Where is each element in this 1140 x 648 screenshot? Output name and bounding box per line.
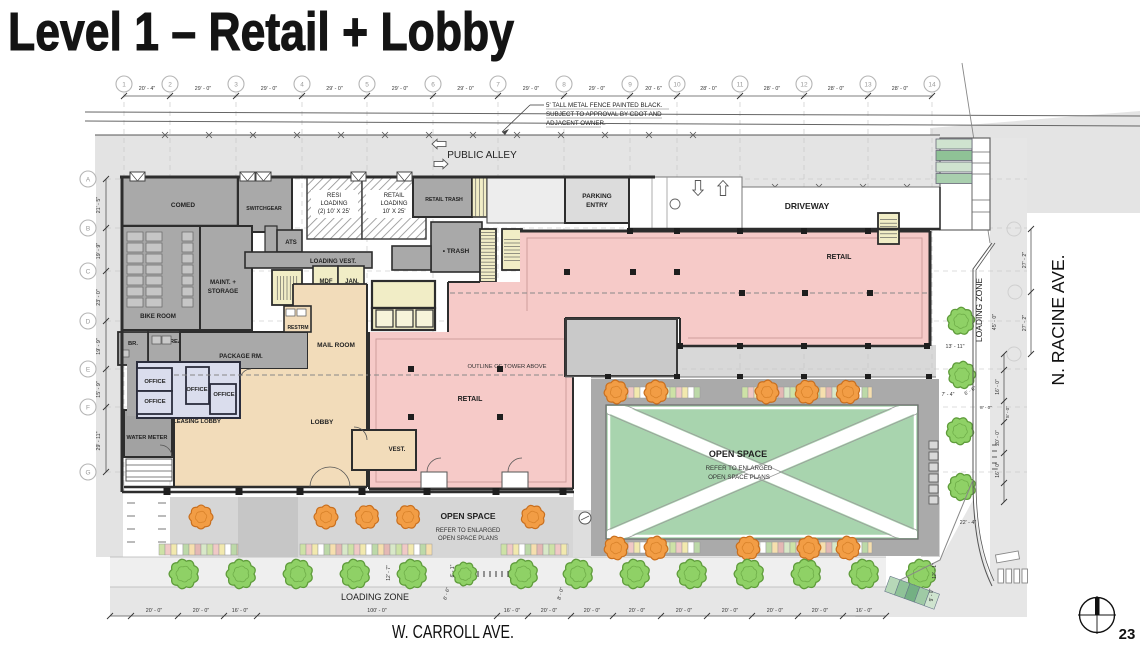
svg-text:(2) 10' X 25': (2) 10' X 25' [318,209,350,215]
svg-text:Level 1 – Retail + Lobby: Level 1 – Retail + Lobby [8,2,514,62]
svg-text:SUBJECT TO APPROVAL BY CDOT AN: SUBJECT TO APPROVAL BY CDOT AND [546,111,662,118]
svg-text:REFER TO ENLARGED: REFER TO ENLARGED [436,528,501,534]
svg-text:PUBLIC ALLEY: PUBLIC ALLEY [447,150,517,161]
svg-text:OFFICE: OFFICE [144,379,165,385]
svg-text:RETAIL: RETAIL [827,254,852,261]
svg-text:12: 12 [800,82,808,89]
svg-text:29' - 0": 29' - 0" [326,86,343,92]
svg-text:OFFICE: OFFICE [144,399,165,405]
svg-text:BIKE ROOM: BIKE ROOM [140,313,176,320]
svg-text:C: C [86,269,91,276]
svg-text:5' TALL METAL FENCE PAINTED BL: 5' TALL METAL FENCE PAINTED BLACK. [546,102,663,109]
svg-text:20' - 0": 20' - 0" [812,608,829,614]
svg-text:REFER TO ENLARGED: REFER TO ENLARGED [706,465,773,472]
svg-text:LOADING: LOADING [320,201,347,207]
svg-text:LOADING ZONE: LOADING ZONE [341,592,409,602]
svg-text:45' - 0": 45' - 0" [992,314,998,331]
svg-text:11: 11 [737,82,744,89]
svg-text:RETAIL: RETAIL [458,396,483,403]
svg-text:28' - 0": 28' - 0" [892,86,909,92]
svg-text:7: 7 [496,82,500,89]
svg-text:29' - 0": 29' - 0" [195,86,212,92]
svg-text:• TRASH: • TRASH [443,248,470,255]
svg-text:28' - 0": 28' - 0" [700,86,717,92]
svg-text:WATER METER: WATER METER [127,435,168,441]
svg-text:20' - 0": 20' - 0" [767,608,784,614]
svg-text:16' - 0": 16' - 0" [504,608,521,614]
svg-text:29' - 0": 29' - 0" [523,86,540,92]
svg-text:COMED: COMED [171,202,196,209]
svg-text:3: 3 [234,82,238,89]
svg-text:STORAGE: STORAGE [208,288,238,295]
svg-text:16' - 0": 16' - 0" [232,608,249,614]
svg-text:SWITCHGEAR: SWITCHGEAR [246,206,282,212]
svg-text:BR.: BR. [128,341,138,347]
svg-text:16' - 0": 16' - 0" [995,462,1001,478]
svg-text:OPEN SPACE PLANS: OPEN SPACE PLANS [708,474,770,481]
svg-text:6' - 1": 6' - 1" [450,564,456,577]
svg-text:W. CARROLL AVE.: W. CARROLL AVE. [392,621,514,642]
svg-text:RETAIL TRASH: RETAIL TRASH [425,197,463,203]
svg-text:19' - 9": 19' - 9" [96,243,102,260]
svg-text:20' - 0": 20' - 0" [995,430,1001,446]
svg-text:10: 10 [673,82,681,89]
svg-text:B: B [86,226,90,233]
svg-text:1: 1 [122,82,126,89]
svg-text:DRIVEWAY: DRIVEWAY [785,201,830,211]
svg-text:5: 5 [365,82,369,89]
svg-text:12' - 7": 12' - 7" [386,565,392,581]
svg-text:9: 9 [628,82,632,89]
svg-text:7' - 4": 7' - 4" [942,392,955,398]
svg-text:16' - 0": 16' - 0" [856,608,873,614]
svg-text:OPEN SPACE PLANS: OPEN SPACE PLANS [438,536,498,542]
svg-text:9' - 0": 9' - 0" [929,588,935,601]
svg-text:20' - 0": 20' - 0" [541,608,558,614]
svg-text:PACKAGE RM.: PACKAGE RM. [219,353,263,360]
svg-text:12' - 1": 12' - 1" [932,563,938,579]
svg-text:28' - 0": 28' - 0" [828,86,845,92]
svg-text:29' - 11": 29' - 11" [96,431,102,450]
svg-text:23' - 0": 23' - 0" [96,289,102,306]
svg-text:LEASING LOBBY: LEASING LOBBY [173,419,221,425]
svg-text:2: 2 [168,82,172,89]
svg-text:A: A [86,177,91,184]
svg-text:F: F [86,405,90,412]
svg-text:10' X 25': 10' X 25' [383,209,406,215]
svg-text:27' - 2": 27' - 2" [1022,315,1028,332]
svg-text:RETAIL: RETAIL [384,193,405,199]
svg-text:LOBBY: LOBBY [311,419,334,426]
svg-text:14: 14 [928,82,936,89]
svg-text:13' - 11": 13' - 11" [946,344,965,350]
svg-text:20' - 0": 20' - 0" [584,608,601,614]
svg-text:ENTRY: ENTRY [586,202,608,209]
svg-text:LOADING VEST.: LOADING VEST. [310,259,356,265]
svg-text:8' - 0": 8' - 0" [1005,406,1010,418]
svg-text:PARKING: PARKING [582,193,612,200]
svg-text:E: E [86,367,91,374]
svg-text:4: 4 [300,82,304,89]
svg-text:20' - 0": 20' - 0" [629,608,646,614]
svg-text:G: G [85,470,90,477]
svg-text:20' - 4": 20' - 4" [139,86,156,92]
svg-text:RESTRM: RESTRM [287,325,308,331]
svg-text:13: 13 [864,82,872,89]
svg-text:100' - 0": 100' - 0" [367,608,387,614]
svg-text:29' - 0": 29' - 0" [392,86,409,92]
svg-text:OFFICE: OFFICE [213,392,234,398]
svg-text:29' - 0": 29' - 0" [589,86,606,92]
svg-text:28' - 0": 28' - 0" [764,86,781,92]
svg-text:N. RACINE AVE.: N. RACINE AVE. [1048,255,1068,386]
svg-text:20' - 0": 20' - 0" [146,608,163,614]
svg-text:ADJACENT OWNER.: ADJACENT OWNER. [546,120,606,127]
svg-text:OFFICE: OFFICE [186,387,207,393]
svg-text:MAINT. +: MAINT. + [210,279,236,286]
svg-text:27' - 2": 27' - 2" [1022,252,1028,269]
svg-text:VEST.: VEST. [389,447,406,453]
svg-text:20' - 0": 20' - 0" [676,608,693,614]
svg-text:15' - 9": 15' - 9" [96,381,102,398]
svg-text:16' - 0": 16' - 0" [995,379,1001,395]
svg-text:20' - 0": 20' - 0" [193,608,210,614]
svg-text:29' - 0": 29' - 0" [457,86,474,92]
svg-text:8' - 0": 8' - 0" [980,405,992,410]
svg-text:OPEN SPACE: OPEN SPACE [440,511,495,521]
svg-text:22' - 4": 22' - 4" [960,520,977,526]
svg-text:ATS: ATS [285,240,297,246]
svg-text:D: D [86,319,91,326]
svg-text:20' - 6": 20' - 6" [645,86,662,92]
svg-text:29' - 0": 29' - 0" [261,86,278,92]
svg-text:MAIL ROOM: MAIL ROOM [317,342,355,349]
svg-text:21' - 5": 21' - 5" [96,197,102,214]
svg-text:RESI: RESI [327,193,341,199]
svg-text:20' - 0": 20' - 0" [722,608,739,614]
svg-text:OUTLINE OF TOWER ABOVE: OUTLINE OF TOWER ABOVE [467,364,546,370]
svg-text:8: 8 [562,82,566,89]
svg-text:LOADING: LOADING [380,201,407,207]
svg-text:19' - 9": 19' - 9" [96,338,102,355]
svg-text:23: 23 [1119,626,1136,643]
svg-text:6: 6 [431,82,435,89]
svg-text:OPEN SPACE: OPEN SPACE [709,449,767,459]
svg-text:LOADING ZONE: LOADING ZONE [974,278,984,343]
